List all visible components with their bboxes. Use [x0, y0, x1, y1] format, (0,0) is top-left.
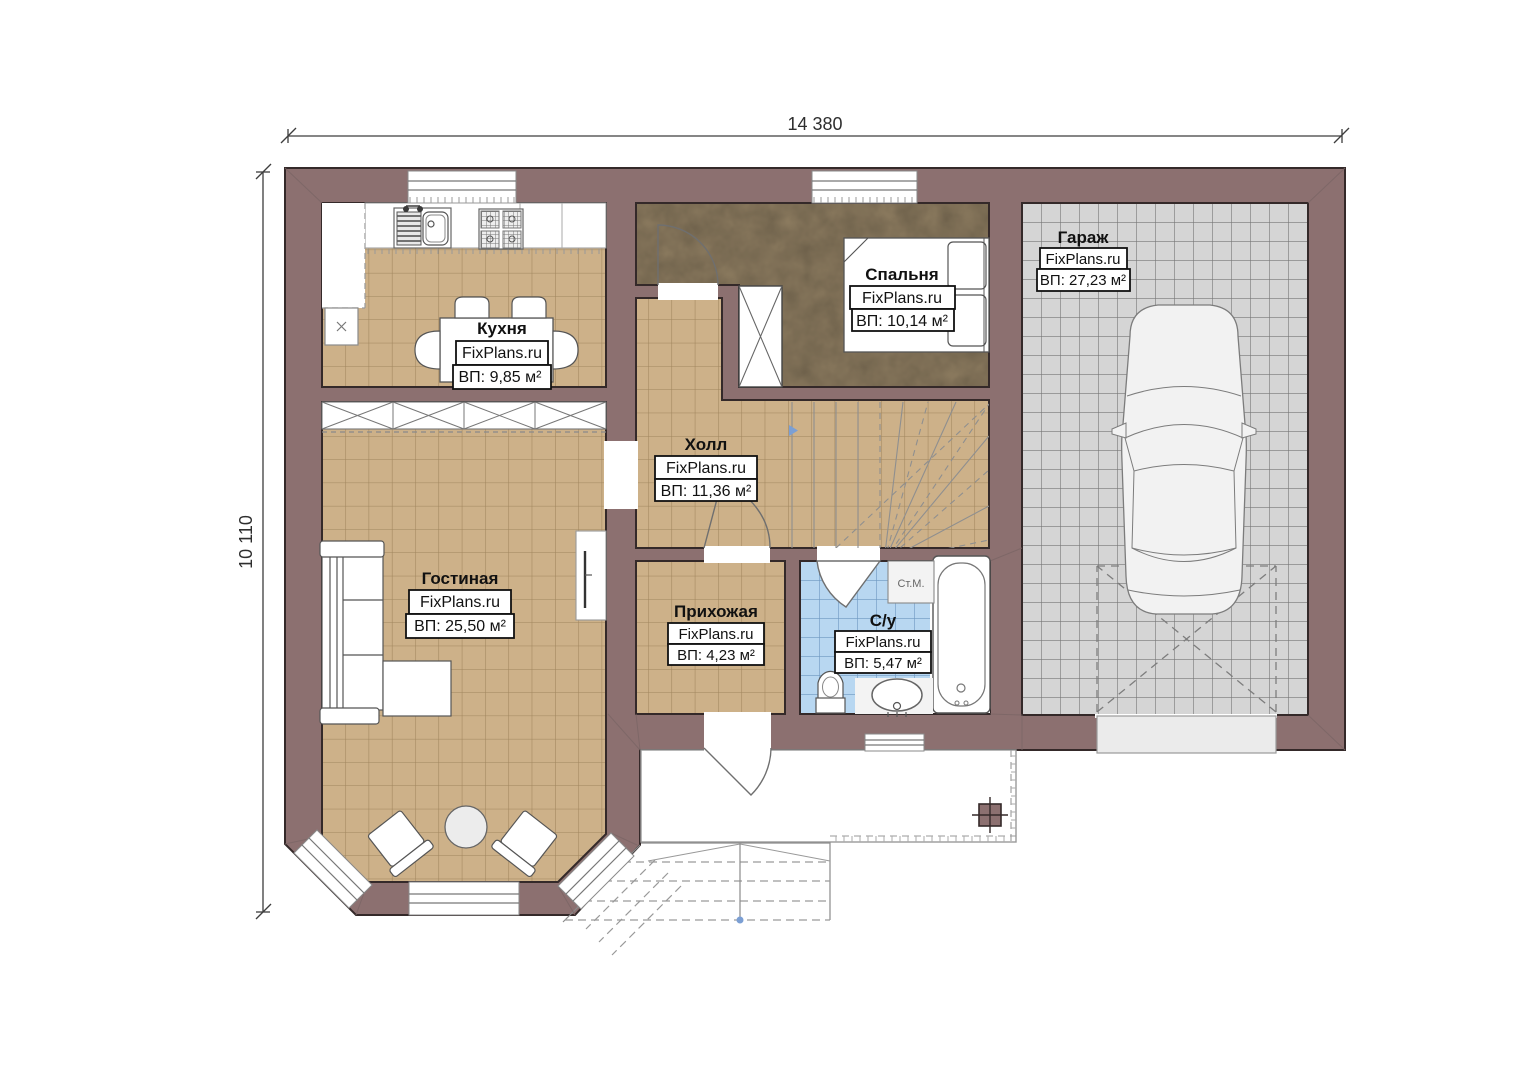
svg-text:FixPlans.ru: FixPlans.ru [845, 634, 920, 651]
svg-text:10 110: 10 110 [236, 515, 256, 569]
svg-text:Кухня: Кухня [477, 319, 527, 338]
svg-text:FixPlans.ru: FixPlans.ru [462, 345, 542, 362]
svg-text:Спальня: Спальня [865, 265, 938, 284]
svg-text:ВП: 9,85 м²: ВП: 9,85 м² [459, 369, 543, 386]
svg-text:FixPlans.ru: FixPlans.ru [420, 594, 500, 611]
svg-text:FixPlans.ru: FixPlans.ru [666, 460, 746, 477]
svg-text:Гостиная: Гостиная [422, 569, 499, 588]
svg-text:С/у: С/у [870, 611, 897, 630]
svg-text:Ст.М.: Ст.М. [897, 578, 924, 590]
svg-text:FixPlans.ru: FixPlans.ru [862, 290, 942, 307]
svg-text:FixPlans.ru: FixPlans.ru [1045, 251, 1120, 268]
svg-text:ВП: 11,36 м²: ВП: 11,36 м² [661, 483, 752, 500]
svg-text:FixPlans.ru: FixPlans.ru [678, 626, 753, 643]
svg-text:ВП: 25,50 м²: ВП: 25,50 м² [414, 618, 507, 635]
svg-text:ВП: 5,47 м²: ВП: 5,47 м² [844, 655, 922, 672]
svg-text:ВП: 4,23 м²: ВП: 4,23 м² [677, 647, 755, 664]
svg-text:ВП: 10,14 м²: ВП: 10,14 м² [856, 313, 949, 330]
svg-text:14 380: 14 380 [787, 114, 842, 134]
svg-text:Прихожая: Прихожая [674, 602, 758, 621]
svg-text:Гараж: Гараж [1058, 228, 1110, 247]
svg-text:ВП: 27,23 м²: ВП: 27,23 м² [1040, 272, 1126, 289]
svg-text:Холл: Холл [685, 435, 728, 454]
